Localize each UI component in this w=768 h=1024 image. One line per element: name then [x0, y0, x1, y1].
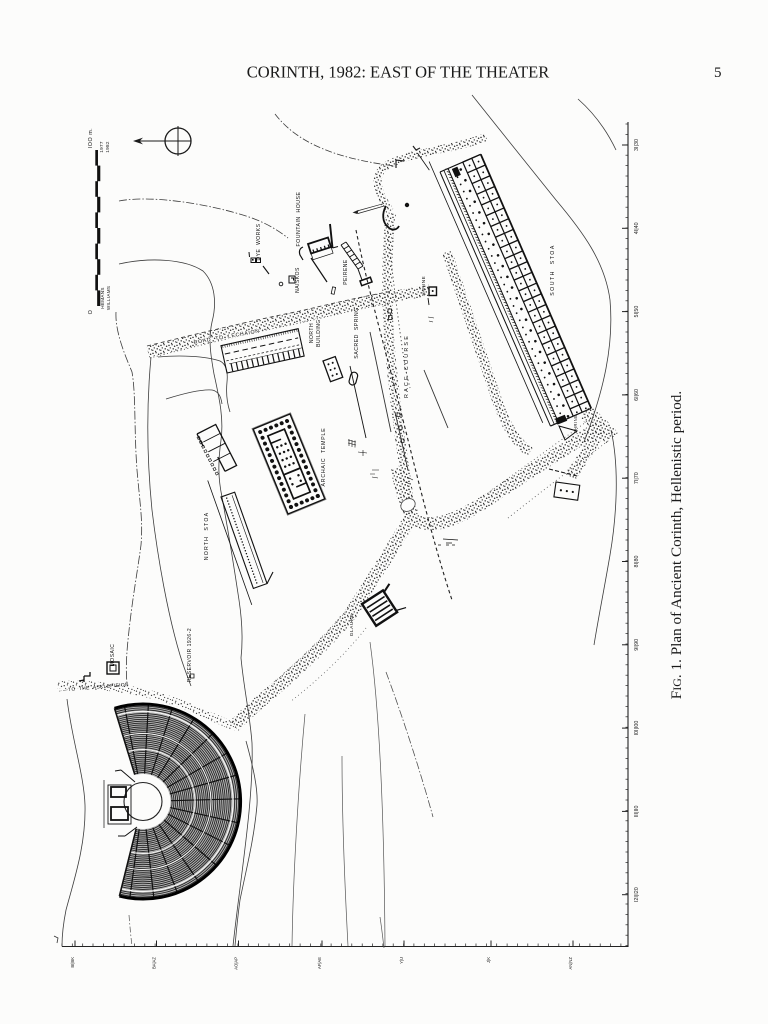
- svg-text:AF|AE: AF|AE: [317, 957, 322, 969]
- svg-text:PEIRENE: PEIRENE: [343, 259, 349, 285]
- svg-text:AN|NZ: AN|NZ: [568, 957, 573, 970]
- svg-text:Y|U: Y|U: [399, 957, 404, 964]
- svg-text:1982: 1982: [105, 141, 110, 153]
- svg-text:O: O: [88, 310, 94, 315]
- svg-text:FOUNTAIN HOUSE: FOUNTAIN HOUSE: [296, 191, 302, 246]
- svg-text:6I|60: 6I|60: [634, 389, 640, 401]
- svg-text:III|II0: III|II0: [634, 805, 640, 817]
- svg-text:SHRINE: SHRINE: [421, 276, 426, 296]
- svg-text:J|K: J|K: [486, 957, 491, 963]
- svg-text:DYE WORKS: DYE WORKS: [256, 223, 262, 260]
- svg-text:4I|40: 4I|40: [634, 222, 640, 234]
- svg-text:NORTH STOA: NORTH STOA: [204, 512, 210, 560]
- svg-text:IOO m.: IOO m.: [88, 128, 94, 148]
- svg-text:NORTH: NORTH: [309, 323, 315, 343]
- svg-text:WILLIAMS: WILLIAMS: [106, 286, 111, 310]
- svg-text:5: 5: [714, 65, 722, 81]
- svg-text:BA|AZ: BA|AZ: [152, 957, 157, 969]
- svg-text:NAISKOS: NAISKOS: [295, 267, 301, 293]
- svg-text:ARCHAIC TEMPLE: ARCHAIC TEMPLE: [321, 428, 327, 487]
- svg-text:I0I|I00: I0I|I00: [634, 721, 640, 736]
- svg-text:7I|70: 7I|70: [634, 472, 640, 484]
- svg-text:1977: 1977: [99, 141, 104, 153]
- svg-text:MOSAIC: MOSAIC: [110, 644, 116, 667]
- svg-text:3I|30: 3I|30: [634, 139, 640, 151]
- svg-text:9I|90: 9I|90: [634, 639, 640, 651]
- svg-text:RACE-COURSE: RACE-COURSE: [404, 334, 410, 398]
- svg-text:8I|80: 8I|80: [634, 556, 640, 568]
- svg-text:CORINTH, 1982: EAST OF THE THE: CORINTH, 1982: EAST OF THE THEATER: [247, 63, 550, 82]
- svg-text:SACRED SPRING: SACRED SPRING: [354, 307, 360, 358]
- svg-text:FIG. 1. Plan of Ancient Corint: FIG. 1. Plan of Ancient Corinth, Helleni…: [668, 391, 685, 699]
- svg-text:SOUTH STOA: SOUTH STOA: [550, 244, 556, 296]
- svg-text:RESERVOIR 1926-2: RESERVOIR 1926-2: [187, 628, 193, 682]
- svg-text:BI|BK: BI|BK: [70, 957, 75, 968]
- svg-text:5I|50: 5I|50: [634, 306, 640, 318]
- svg-text:I2I|I20: I2I|I20: [634, 887, 640, 902]
- svg-text:GLAUKE: GLAUKE: [349, 614, 355, 636]
- svg-text:HEMANS: HEMANS: [100, 287, 105, 308]
- svg-text:SHRINE: SHRINE: [573, 415, 578, 434]
- svg-text:BUILDING: BUILDING: [316, 319, 322, 347]
- svg-text:AO|AP: AO|AP: [234, 957, 239, 970]
